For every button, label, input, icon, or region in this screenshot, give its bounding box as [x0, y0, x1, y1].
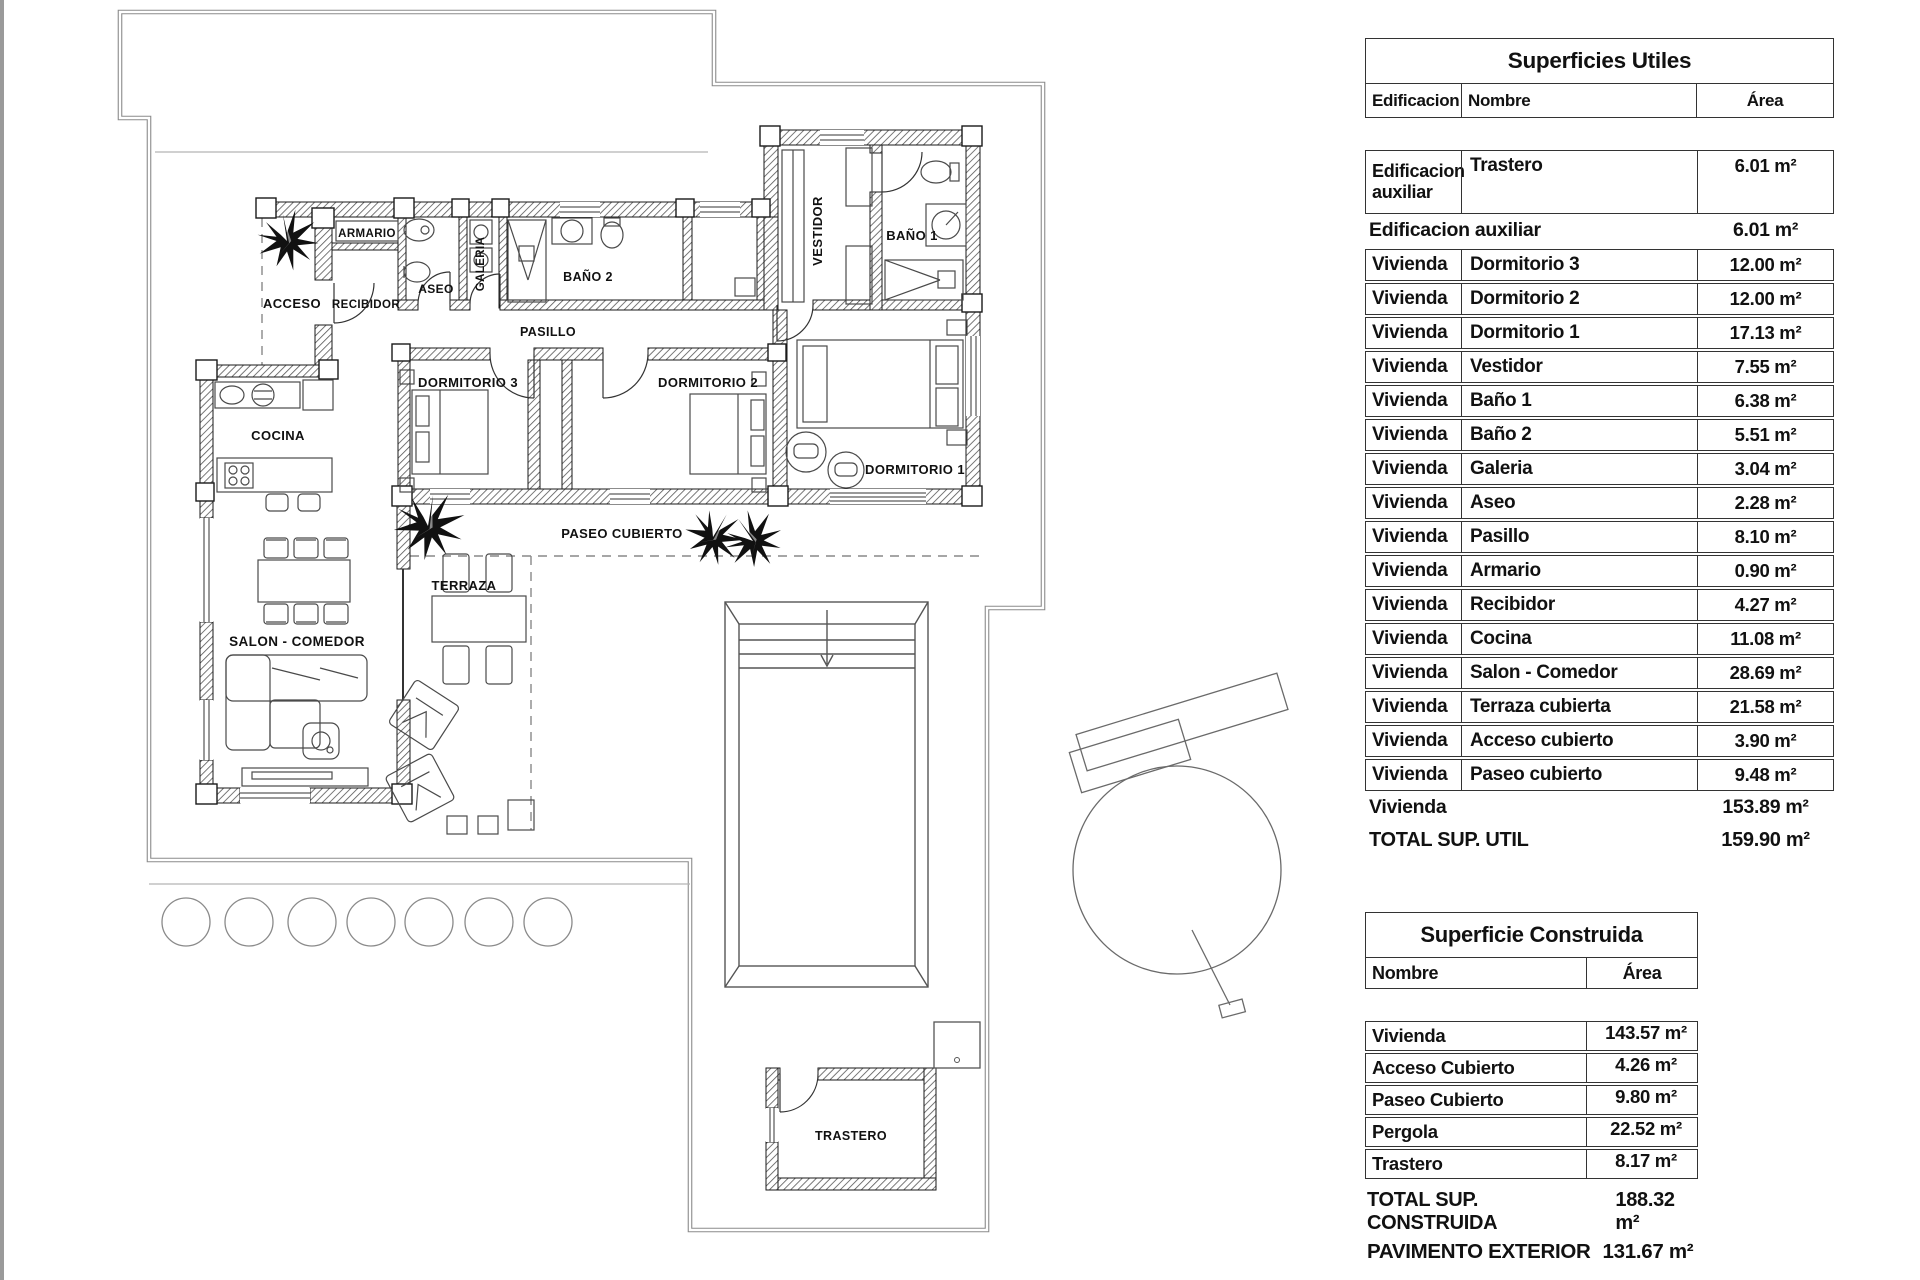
table-row: ViviendaDormitorio 117.13 m²: [1365, 317, 1834, 349]
sink-icon: [552, 218, 592, 244]
kitchen-island: [217, 458, 332, 511]
room-labels: ACCESO ARMARIO RECIBIDOR ASEO GALERIA BA…: [229, 196, 965, 1143]
bed-icon: [797, 320, 967, 445]
room-label-acceso: ACCESO: [263, 296, 321, 311]
pergola-tree: [1073, 766, 1281, 974]
terrace-table: [432, 554, 526, 684]
room-label-bano1: BAÑO 1: [886, 228, 938, 243]
utiles-header-area: Área: [1696, 84, 1833, 117]
room-label-terraza: TERRAZA: [432, 578, 497, 593]
table-row: ViviendaAcceso cubierto3.90 m²: [1365, 725, 1834, 757]
walls: [200, 130, 980, 803]
table-row: ViviendaRecibidor4.27 m²: [1365, 589, 1834, 621]
table-row: ViviendaDormitorio 212.00 m²: [1365, 283, 1834, 315]
pergola: [1069, 673, 1288, 1018]
room-label-recibidor: RECIBIDOR: [332, 299, 400, 311]
trastero-building: [766, 1022, 980, 1190]
room-label-vestidor: VESTIDOR: [810, 196, 825, 266]
construida-rows: Vivienda143.57 m² Acceso Cubierto4.26 m²…: [1365, 1021, 1698, 1179]
fridge-icon: [303, 380, 333, 410]
table-row: Pergola22.52 m²: [1365, 1117, 1698, 1147]
construida-total: TOTAL SUP. CONSTRUIDA 188.32 m²: [1365, 1189, 1698, 1235]
room-label-dormitorio3: DORMITORIO 3: [418, 375, 518, 390]
table-row: ViviendaCocina11.08 m²: [1365, 623, 1834, 655]
table-row: ViviendaSalon - Comedor28.69 m²: [1365, 657, 1834, 689]
table-row: ViviendaBaño 16.38 m²: [1365, 385, 1834, 417]
utiles-aux-subtotal: Edificacion auxiliar 6.01 m²: [1365, 214, 1834, 247]
utiles-vivienda-subtotal: Vivienda 153.89 m²: [1365, 791, 1834, 824]
room-label-dormitorio1: DORMITORIO 1: [865, 462, 965, 477]
page: ACCESO ARMARIO RECIBIDOR ASEO GALERIA BA…: [0, 0, 1920, 1280]
room-label-armario: ARMARIO: [338, 228, 396, 240]
utiles-header-edificacion: Edificacion: [1366, 91, 1461, 111]
stepping-stones: [162, 898, 572, 946]
construida-title: Superficie Construida: [1366, 913, 1697, 958]
chair-icon: [828, 452, 864, 488]
stool-icon: [298, 494, 320, 511]
room-label-galeria: GALERIA: [475, 237, 487, 292]
pavimento-exterior: PAVIMENTO EXTERIOR 131.67 m²: [1367, 1240, 1693, 1264]
table-row: Trastero8.17 m²: [1365, 1149, 1698, 1179]
toilet-icon: [404, 219, 434, 241]
paving-pad: [508, 800, 534, 830]
wardrobe-icon: [782, 148, 872, 304]
utiles-total: TOTAL SUP. UTIL 159.90 m²: [1365, 824, 1834, 857]
paving-pad: [478, 816, 498, 834]
construida-header-nombre: Nombre: [1366, 963, 1586, 984]
paving-pad: [447, 816, 467, 834]
toilet-icon: [921, 161, 959, 183]
utiles-rows: Edificacion auxiliar Trastero 6.01 m² Ed…: [1365, 150, 1834, 857]
table-row: Paseo Cubierto9.80 m²: [1365, 1085, 1698, 1115]
room-label-paseo: PASEO CUBIERTO: [561, 526, 682, 541]
table-row: Vivienda143.57 m²: [1365, 1021, 1698, 1051]
sink-icon: [404, 262, 430, 282]
side-table: [303, 723, 339, 759]
construida-header-area: Área: [1586, 958, 1697, 988]
room-label-bano2: BAÑO 2: [563, 269, 613, 284]
room-label-trastero: TRASTERO: [815, 1129, 887, 1143]
dining-table: [258, 538, 350, 624]
doors: [334, 152, 922, 398]
table-row: ViviendaDormitorio 312.00 m²: [1365, 249, 1834, 281]
room-label-salon: SALON - COMEDOR: [229, 634, 365, 649]
pool: [725, 602, 928, 987]
room-label-aseo: ASEO: [418, 282, 454, 296]
shower-icon: [508, 220, 546, 302]
plot-boundary: [120, 12, 1043, 1230]
sofa-icon: [226, 655, 367, 750]
stool-icon: [266, 494, 288, 511]
table-row: ViviendaPasillo8.10 m²: [1365, 521, 1834, 553]
utiles-title: Superficies Utiles: [1366, 39, 1833, 84]
construida-header-box: Superficie Construida Nombre Área: [1365, 912, 1698, 989]
superficies-utiles-table: Superficies Utiles Edificacion Nombre Ár…: [1365, 38, 1834, 857]
bed-icon: [690, 372, 766, 492]
tv-console: [242, 768, 368, 786]
toilet-icon: [601, 218, 623, 248]
table-row: Edificacion auxiliar Trastero 6.01 m²: [1365, 150, 1834, 214]
shower-icon: [885, 260, 963, 300]
plant-icon: [674, 496, 756, 578]
equipment-box: [934, 1022, 980, 1068]
cabinet-icon: [735, 278, 755, 296]
table-row: ViviendaTerraza cubierta21.58 m²: [1365, 691, 1834, 723]
table-row: Acceso Cubierto4.26 m²: [1365, 1053, 1698, 1083]
kitchen-counter: [215, 380, 333, 410]
table-row: ViviendaGaleria3.04 m²: [1365, 453, 1834, 485]
room-label-pasillo: PASILLO: [520, 325, 576, 339]
utiles-header-nombre: Nombre: [1461, 84, 1696, 117]
superficie-construida-table: Superficie Construida Nombre Área Vivien…: [1365, 912, 1698, 1235]
table-row: ViviendaVestidor7.55 m²: [1365, 351, 1834, 383]
table-row: ViviendaPaseo cubierto9.48 m²: [1365, 759, 1834, 791]
room-label-dormitorio2: DORMITORIO 2: [658, 375, 758, 390]
chair-icon: [786, 432, 826, 472]
table-row: ViviendaAseo2.28 m²: [1365, 487, 1834, 519]
utiles-header-box: Superficies Utiles Edificacion Nombre Ár…: [1365, 38, 1834, 118]
floor-plan: ACCESO ARMARIO RECIBIDOR ASEO GALERIA BA…: [0, 0, 1345, 1280]
room-label-cocina: COCINA: [251, 428, 305, 443]
table-row: ViviendaBaño 25.51 m²: [1365, 419, 1834, 451]
table-row: ViviendaArmario0.90 m²: [1365, 555, 1834, 587]
